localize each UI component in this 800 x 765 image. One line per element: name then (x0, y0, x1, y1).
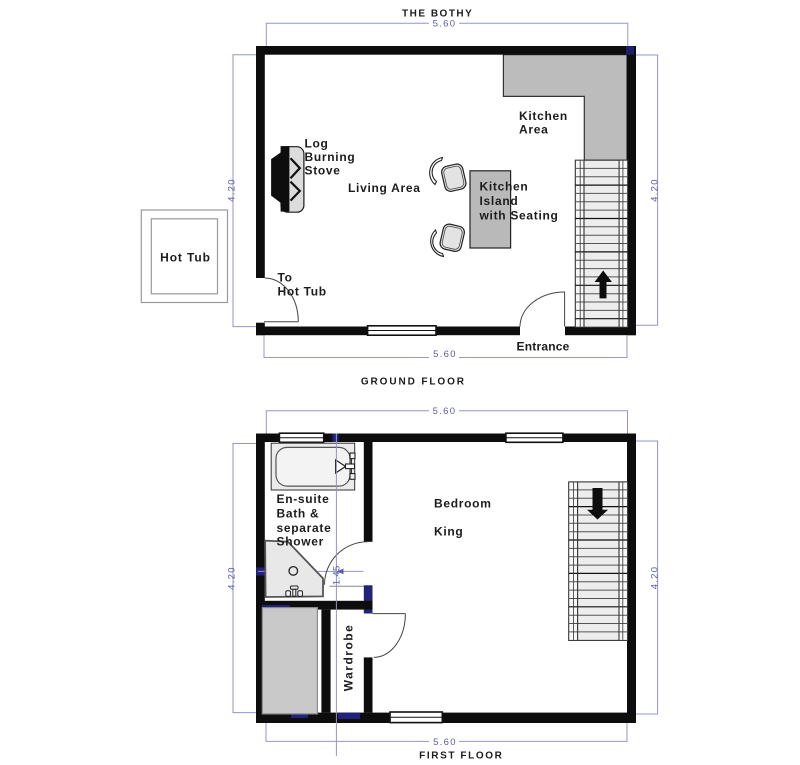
svg-text:To: To (278, 271, 293, 285)
svg-text:4.20: 4.20 (649, 178, 660, 202)
svg-text:Area: Area (519, 123, 548, 137)
svg-text:Bedroom: Bedroom (434, 497, 492, 511)
svg-text:Entrance: Entrance (517, 340, 570, 354)
svg-text:5.60: 5.60 (433, 406, 457, 417)
svg-text:Stove: Stove (305, 163, 341, 177)
svg-text:Kitchen: Kitchen (480, 180, 529, 194)
svg-text:4.20: 4.20 (227, 178, 238, 202)
svg-text:separate: separate (277, 521, 332, 535)
svg-text:Log: Log (305, 137, 329, 151)
svg-text:GROUND FLOOR: GROUND FLOOR (361, 376, 466, 387)
svg-text:Bath &: Bath & (277, 507, 320, 521)
svg-text:5.60: 5.60 (433, 18, 457, 29)
svg-text:Burning: Burning (305, 150, 356, 164)
svg-text:Wardrobe: Wardrobe (342, 624, 356, 692)
svg-text:En-suite: En-suite (277, 492, 330, 506)
svg-text:5.60: 5.60 (433, 737, 457, 748)
svg-text:Living Area: Living Area (348, 181, 421, 195)
svg-text:Hot Tub: Hot Tub (278, 285, 327, 299)
svg-text:5.60: 5.60 (433, 349, 457, 360)
svg-text:King: King (434, 525, 463, 539)
svg-text:1.45: 1.45 (331, 565, 342, 585)
svg-text:FIRST FLOOR: FIRST FLOOR (419, 751, 503, 762)
svg-text:Kitchen: Kitchen (519, 109, 568, 123)
svg-text:Island: Island (480, 194, 519, 208)
svg-text:4.20: 4.20 (227, 566, 238, 590)
svg-text:Shower: Shower (277, 534, 325, 548)
svg-text:with Seating: with Seating (479, 208, 559, 222)
svg-text:Hot Tub: Hot Tub (160, 251, 211, 265)
svg-text:4.20: 4.20 (649, 566, 660, 590)
